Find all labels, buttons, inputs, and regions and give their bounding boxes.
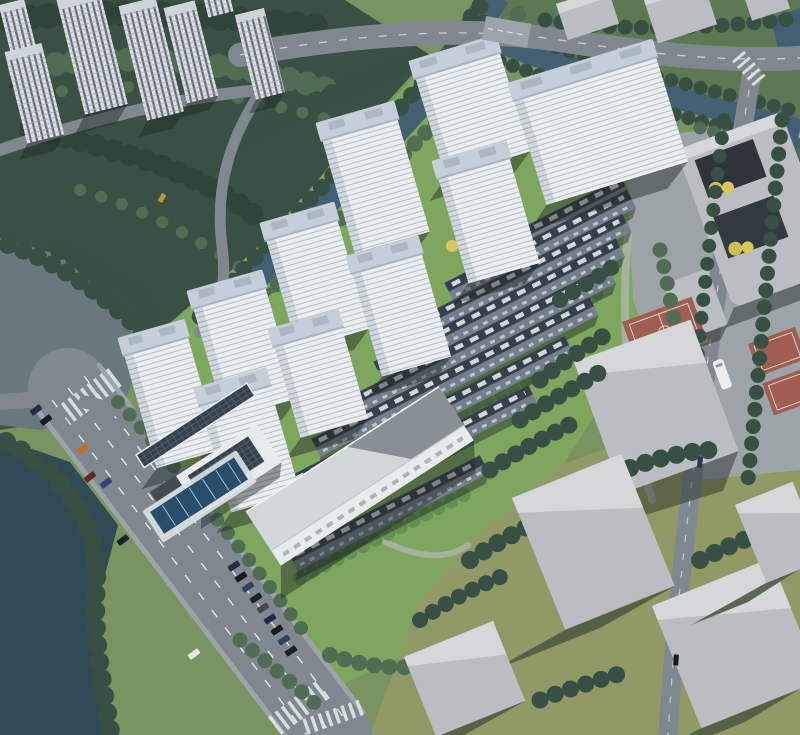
aerial-rendering <box>0 0 800 735</box>
rendering-canvas <box>0 0 800 735</box>
atmospheric-haze <box>0 0 800 735</box>
